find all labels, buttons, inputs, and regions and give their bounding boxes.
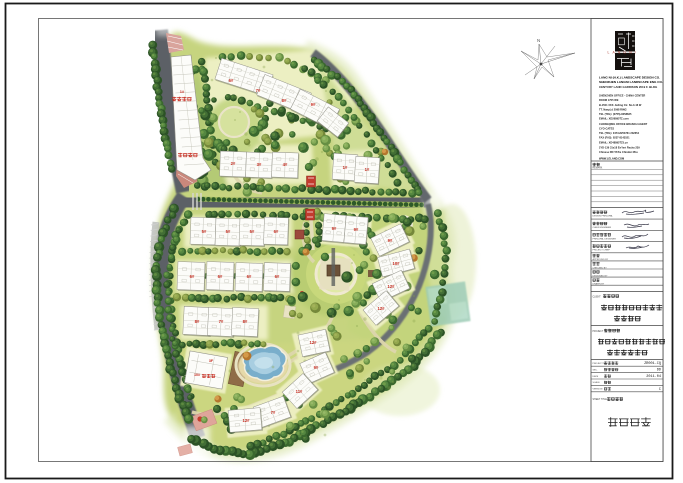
svg-text:FAX (FA2): 0237-8143521: FAX (FA2): 0237-8143521 [599,136,630,140]
svg-text:N: N [537,38,540,43]
svg-text:1#: 1# [180,89,185,94]
svg-text:EMAIL: XD48895TZ5.cn: EMAIL: XD48895TZ5.cn [599,141,628,145]
svg-text:1#: 1# [343,165,348,170]
svg-text:6#: 6# [275,274,280,279]
svg-text:EMAIL: XD26895TZ.com: EMAIL: XD26895TZ.com [599,117,629,121]
svg-text:C: C [659,388,661,392]
svg-text:SEC.: SEC. [593,369,598,371]
svg-text:5#: 5# [226,229,231,234]
svg-text:DD: DD [657,369,661,373]
svg-text:ZR001-CQ: ZR001-CQ [644,362,661,366]
svg-text:7#: 7# [219,319,224,324]
svg-text:PROJECT: PROJECT [593,331,604,333]
svg-text:2011.04: 2011.04 [646,375,661,379]
svg-text:12#: 12# [310,340,318,345]
svg-text:TEL (TRL): 0473-8253761 232654: TEL (TRL): 0473-8253761 232654 [599,131,640,135]
svg-text:6#: 6# [229,78,234,83]
svg-text:3#: 3# [257,162,262,167]
svg-text:CHIEF ENGINEER: CHIEF ENGINEER [593,227,612,229]
svg-text:VERSION: VERSION [593,389,603,391]
svg-text:1#: 1# [365,167,370,172]
svg-text:11#: 11# [296,389,303,394]
svg-text:5#: 5# [202,229,207,234]
svg-text:REMARK: REMARK [593,166,603,169]
svg-text:CENTURY LAND GARRISON 2019 F.: CENTURY LAND GARRISON 2019 F. BLDG [599,85,658,89]
svg-text:TT. NanpLd 2098 RING: TT. NanpLd 2098 RING [599,108,627,112]
svg-text:PRINCIPAL DESIGNER: PRINCIPAL DESIGNER [593,237,617,240]
svg-text:10#: 10# [393,261,401,266]
svg-text:APPROVED BY: APPROVED BY [593,258,609,261]
svg-text:CLIENT: CLIENT [593,297,602,299]
svg-text:DRAWN BY: DRAWN BY [593,283,605,286]
svg-text:SHEET TITLE: SHEET TITLE [593,399,608,401]
svg-text:PROJECT CHIEF: PROJECT CHIEF [593,250,611,252]
svg-text:9#: 9# [332,226,337,231]
svg-text:CHECKED BY: CHECKED BY [593,267,608,269]
svg-text:TEL (TRL): (0755)-8258835: TEL (TRL): (0755)-8258835 [599,112,632,116]
svg-text:6#: 6# [190,274,195,279]
svg-text:9#: 9# [354,227,359,232]
svg-text:LANGNI: LANGNI [608,50,639,54]
svg-text:8#: 8# [195,319,200,324]
svg-text:ROOM 1705 WE: ROOM 1705 WE [599,98,619,102]
svg-text:6#: 6# [218,274,223,279]
svg-text:6#: 6# [274,229,279,234]
svg-text:12#: 12# [378,306,386,311]
svg-text:8#: 8# [282,98,287,103]
svg-text:12#: 12# [388,284,396,289]
svg-text:10#: 10# [194,373,200,377]
svg-text:SHENZHEN LANGNI LANDSCAPE ENG: SHENZHEN LANGNI LANDSCAPE ENG CO. [599,80,663,84]
svg-text:9#: 9# [314,365,319,370]
svg-text:DATE: DATE [593,375,599,378]
svg-text:7#: 7# [256,88,261,93]
svg-text:B-1501 15/F. JaXing Ctr. No.3-: B-1501 15/F. JaXing Ctr. No.3-16 W [599,103,642,107]
svg-text:4#: 4# [283,162,288,167]
svg-text:DESIGNED BY: DESIGNED BY [593,275,608,277]
svg-text:9#: 9# [388,238,393,243]
svg-text:5#: 5# [250,229,255,234]
svg-text:2YD-139 31x18 EnYert Recha 239: 2YD-139 31x18 EnYert Recha 239 [599,145,640,149]
svg-text:SCALE: SCALE [593,381,601,384]
svg-text:2#: 2# [231,161,236,166]
svg-text:SHENZHEN OFFICE - CHINA CENTER: SHENZHEN OFFICE - CHINA CENTER [599,94,645,98]
svg-text:Chinese RD TATre Chindat 45tu: Chinese RD TATre Chindat 45tu [599,150,638,154]
svg-text:12#: 12# [243,418,251,423]
svg-text:LANG NI (H.K.) LANDSCAPE DESIG: LANG NI (H.K.) LANDSCAPE DESIGN CO. [599,75,660,79]
svg-text:7#: 7# [271,410,276,415]
svg-text:CYO-CATES: CYO-CATES [599,126,614,130]
svg-text:8#: 8# [243,319,248,324]
svg-text:WWW.LELAND.COM: WWW.LELAND.COM [599,157,624,161]
svg-text:9#: 9# [311,102,316,107]
svg-text:CHONGQING OFFICE BRANCH AGENT: CHONGQING OFFICE BRANCH AGENT [599,122,648,126]
svg-text:6#: 6# [247,274,252,279]
svg-text:DESIGN PRINCIPAL: DESIGN PRINCIPAL [593,215,614,218]
